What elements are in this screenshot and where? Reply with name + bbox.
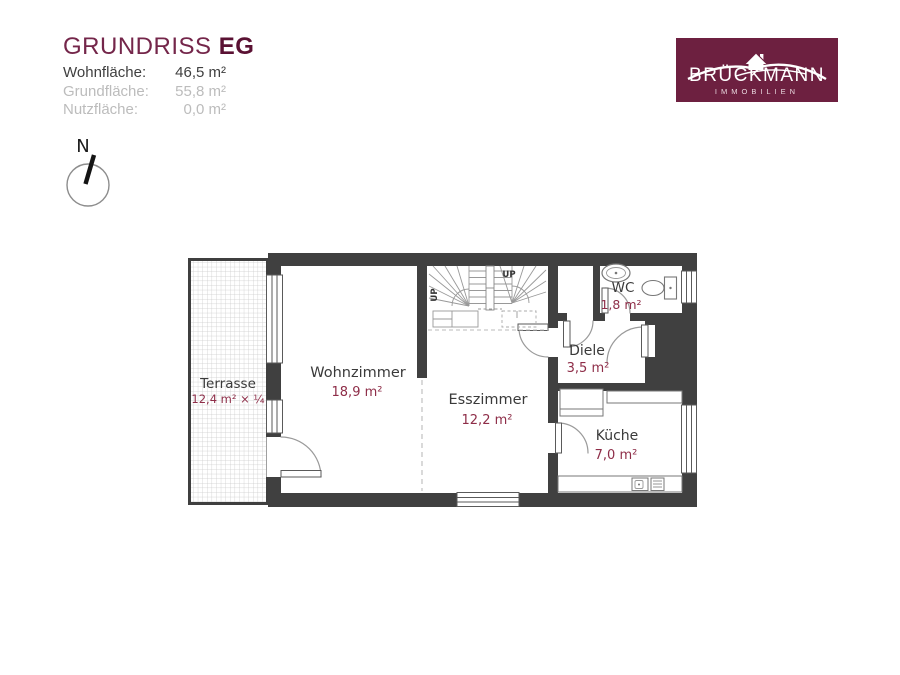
stairs-up-label-top: UP xyxy=(502,270,515,280)
kitchen-stove-icon xyxy=(651,478,664,491)
stairs-up-label-left: UP xyxy=(430,288,440,301)
metric-label: Wohnfläche: xyxy=(63,64,146,83)
metric-value: 0,0 m² xyxy=(183,101,226,120)
north-arrow: N xyxy=(58,128,122,212)
wall-wc-bottom-a xyxy=(600,313,605,321)
label-wohnzimmer: Wohnzimmer xyxy=(310,365,406,381)
metric-value: 46,5 m² xyxy=(175,64,226,83)
label-terrasse: Terrasse xyxy=(199,376,256,392)
wall-wc-left xyxy=(593,266,600,313)
floor-plan: Terrasse 12,4 m² × ¼ Wohnzimmer 18,9 m² … xyxy=(180,248,710,514)
kitchen-cabinet-icon xyxy=(560,389,603,416)
floorplan-page: GRUNDRISS EG Wohnfläche: 46,5 m² Grundfl… xyxy=(0,0,900,675)
wall-livingroom-divider xyxy=(417,266,427,378)
compass-needle-icon xyxy=(86,155,95,184)
kitchen-counter-top xyxy=(607,391,682,403)
label-esszimmer: Esszimmer xyxy=(448,392,527,408)
window-kitchen xyxy=(682,405,697,473)
metric-row: Grundfläche: 55,8 m² xyxy=(63,83,226,102)
area-diele: 3,5 m² xyxy=(567,361,610,376)
window-terrace-large xyxy=(267,275,283,363)
wall-kitchen-left xyxy=(548,453,558,493)
wall-strip-bottom-a xyxy=(548,313,567,321)
wall-top xyxy=(268,253,697,266)
window-esszimmer-south xyxy=(457,493,519,507)
kitchen-counter-bottom xyxy=(558,476,682,492)
window-wc xyxy=(682,271,697,303)
page-title: GRUNDRISS EG xyxy=(63,33,254,61)
area-esszimmer: 12,2 m² xyxy=(462,413,513,428)
page-title-main: GRUNDRISS xyxy=(63,33,212,60)
area-wc: 1,8 m² xyxy=(600,297,641,312)
brand-logo: BRÜCKMANN IMMOBILIEN xyxy=(676,38,838,102)
compass-north-label: N xyxy=(76,136,89,157)
metric-value: 55,8 m² xyxy=(175,83,226,102)
metric-label: Grundfläche: xyxy=(63,83,149,102)
metric-label: Nutzfläche: xyxy=(63,101,138,120)
wall-wc-bottom-b xyxy=(630,313,682,321)
metric-row: Nutzfläche: 0,0 m² xyxy=(63,101,226,120)
area-terrasse: 12,4 m² × ¼ xyxy=(191,392,264,406)
logo-hills-house-icon xyxy=(676,38,838,102)
wall-strip-bottom-b xyxy=(593,313,600,321)
window-terrace-small xyxy=(267,400,283,433)
label-diele: Diele xyxy=(569,343,605,359)
area-wohnzimmer: 18,9 m² xyxy=(332,385,383,400)
area-kueche: 7,0 m² xyxy=(595,448,638,463)
area-metrics: Wohnfläche: 46,5 m² Grundfläche: 55,8 m²… xyxy=(63,64,226,120)
kitchen-sink-icon xyxy=(632,478,648,491)
metric-row: Wohnfläche: 46,5 m² xyxy=(63,64,226,83)
label-wc: WC xyxy=(612,280,635,296)
page-title-floor: EG xyxy=(219,33,255,60)
label-kueche: Küche xyxy=(596,428,639,444)
